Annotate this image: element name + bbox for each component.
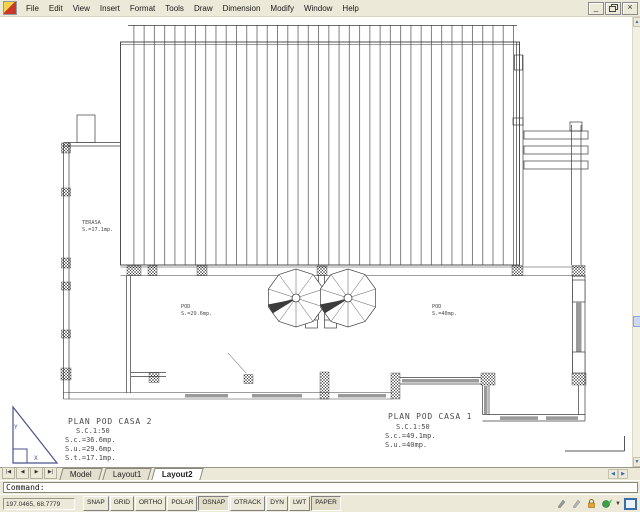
restore-button[interactable] (605, 2, 621, 15)
layout-tab-bar: |◀ ◀ ▶ ▶| Model Layout1 Layout2 ◀ ▶ (0, 467, 640, 480)
ortho-toggle[interactable]: ORTHO (135, 496, 166, 511)
tab-model[interactable]: Model (59, 468, 102, 480)
roof-hatch (121, 25, 520, 265)
tab-layout2[interactable]: Layout2 (152, 468, 204, 480)
floor-plan (61, 25, 588, 421)
tab-nav-first[interactable]: |◀ (2, 467, 15, 479)
casa2-sc: S.c.=36.6mp. (65, 436, 116, 444)
scroll-left-button[interactable]: ◀ (608, 469, 618, 479)
menu-edit[interactable]: Edit (44, 2, 68, 15)
scroll-down-button[interactable]: ▼ (633, 457, 640, 467)
menu-modify[interactable]: Modify (265, 2, 299, 15)
communication-center-icon[interactable] (600, 497, 613, 510)
spiral-stair-left (268, 269, 324, 327)
status-bar: 197.0465, 68.7779 SNAP GRID ORTHO POLAR … (0, 494, 640, 512)
casa1-scale: S.C.1:50 (396, 423, 430, 431)
command-input[interactable]: Command: (3, 482, 638, 493)
toolbar-lock-icon[interactable] (585, 497, 598, 510)
menu-draw[interactable]: Draw (189, 2, 218, 15)
snap-toggle[interactable]: SNAP (83, 496, 109, 511)
pod-left-area: S.=29.6mp. (181, 311, 212, 317)
casa2-scale: S.C.1:50 (76, 427, 110, 435)
status-tray: ▼ (553, 497, 637, 510)
grid-toggle[interactable]: GRID (110, 496, 134, 511)
otrack-toggle[interactable]: OTRACK (230, 496, 265, 511)
dyn-toggle[interactable]: DYN (266, 496, 288, 511)
pencil-icon-2[interactable] (570, 497, 583, 510)
drawing-area: TERASA S.=17.1mp. POD S.=29.6mp. POD S.=… (0, 17, 640, 467)
lwt-toggle[interactable]: LWT (289, 496, 310, 511)
tray-menu-arrow-icon[interactable]: ▼ (615, 501, 621, 507)
casa1-su: S.u.=40mp. (385, 441, 427, 449)
app-icon[interactable] (3, 1, 17, 15)
pencil-icon[interactable] (555, 497, 568, 510)
balcony (513, 42, 588, 265)
command-window: Command: (0, 480, 640, 494)
casa1-sc: S.c.=49.1mp. (385, 432, 436, 440)
tab-nav-prev[interactable]: ◀ (16, 467, 29, 479)
polar-toggle[interactable]: POLAR (167, 496, 197, 511)
casa2-su: S.u.=29.6mp. (65, 445, 116, 453)
clean-screen-icon[interactable] (624, 498, 637, 510)
drawing-canvas[interactable]: TERASA S.=17.1mp. POD S.=29.6mp. POD S.=… (0, 17, 632, 467)
menu-help[interactable]: Help (337, 2, 363, 15)
menu-file[interactable]: File (21, 2, 44, 15)
ucs-x-label: X (34, 455, 38, 462)
vertical-scroll-thumb[interactable] (633, 316, 640, 327)
terasa-label: TERASA (82, 220, 102, 226)
menu-dimension[interactable]: Dimension (218, 2, 266, 15)
casa2-st: S.t.=17.1mp. (65, 454, 116, 462)
right-bay (400, 276, 586, 422)
bottom-wall (64, 372, 401, 399)
casa1-title: PLAN POD CASA 1 (388, 412, 472, 421)
restore-icon (609, 4, 617, 11)
menu-bar: File Edit View Insert Format Tools Draw … (0, 0, 640, 17)
terasa-area: S.=17.1mp. (82, 227, 113, 233)
tab-layout1[interactable]: Layout1 (102, 468, 152, 480)
ucs-y-label: Y (14, 424, 18, 431)
paper-corner-mark (565, 436, 625, 451)
close-button[interactable]: × (622, 2, 638, 15)
casa2-title: PLAN POD CASA 2 (68, 417, 152, 426)
paper-toggle[interactable]: PAPER (311, 496, 341, 511)
spiral-stair-right (320, 269, 376, 327)
tab-nav-next[interactable]: ▶ (30, 467, 43, 479)
coordinate-readout[interactable]: 197.0465, 68.7779 (3, 498, 75, 510)
menu-format[interactable]: Format (125, 2, 160, 15)
tab-nav-last[interactable]: ▶| (44, 467, 57, 479)
pod-right-label: POD (432, 304, 441, 310)
terrace-outline (61, 115, 121, 399)
menu-window[interactable]: Window (299, 2, 337, 15)
menu-insert[interactable]: Insert (95, 2, 125, 15)
autocad-window: File Edit View Insert Format Tools Draw … (0, 0, 640, 512)
minimize-button[interactable]: _ (588, 2, 604, 15)
osnap-toggle[interactable]: OSNAP (198, 496, 229, 511)
menu-view[interactable]: View (68, 2, 95, 15)
menu-tools[interactable]: Tools (160, 2, 189, 15)
pod-right-area: S.=40mp. (432, 311, 457, 317)
ucs-icon: Y X (13, 407, 57, 463)
scroll-right-button[interactable]: ▶ (618, 469, 628, 479)
vertical-scrollbar[interactable]: ▲ ▼ (632, 17, 640, 467)
pod-left-label: POD (181, 304, 190, 310)
scroll-up-button[interactable]: ▲ (633, 17, 640, 27)
